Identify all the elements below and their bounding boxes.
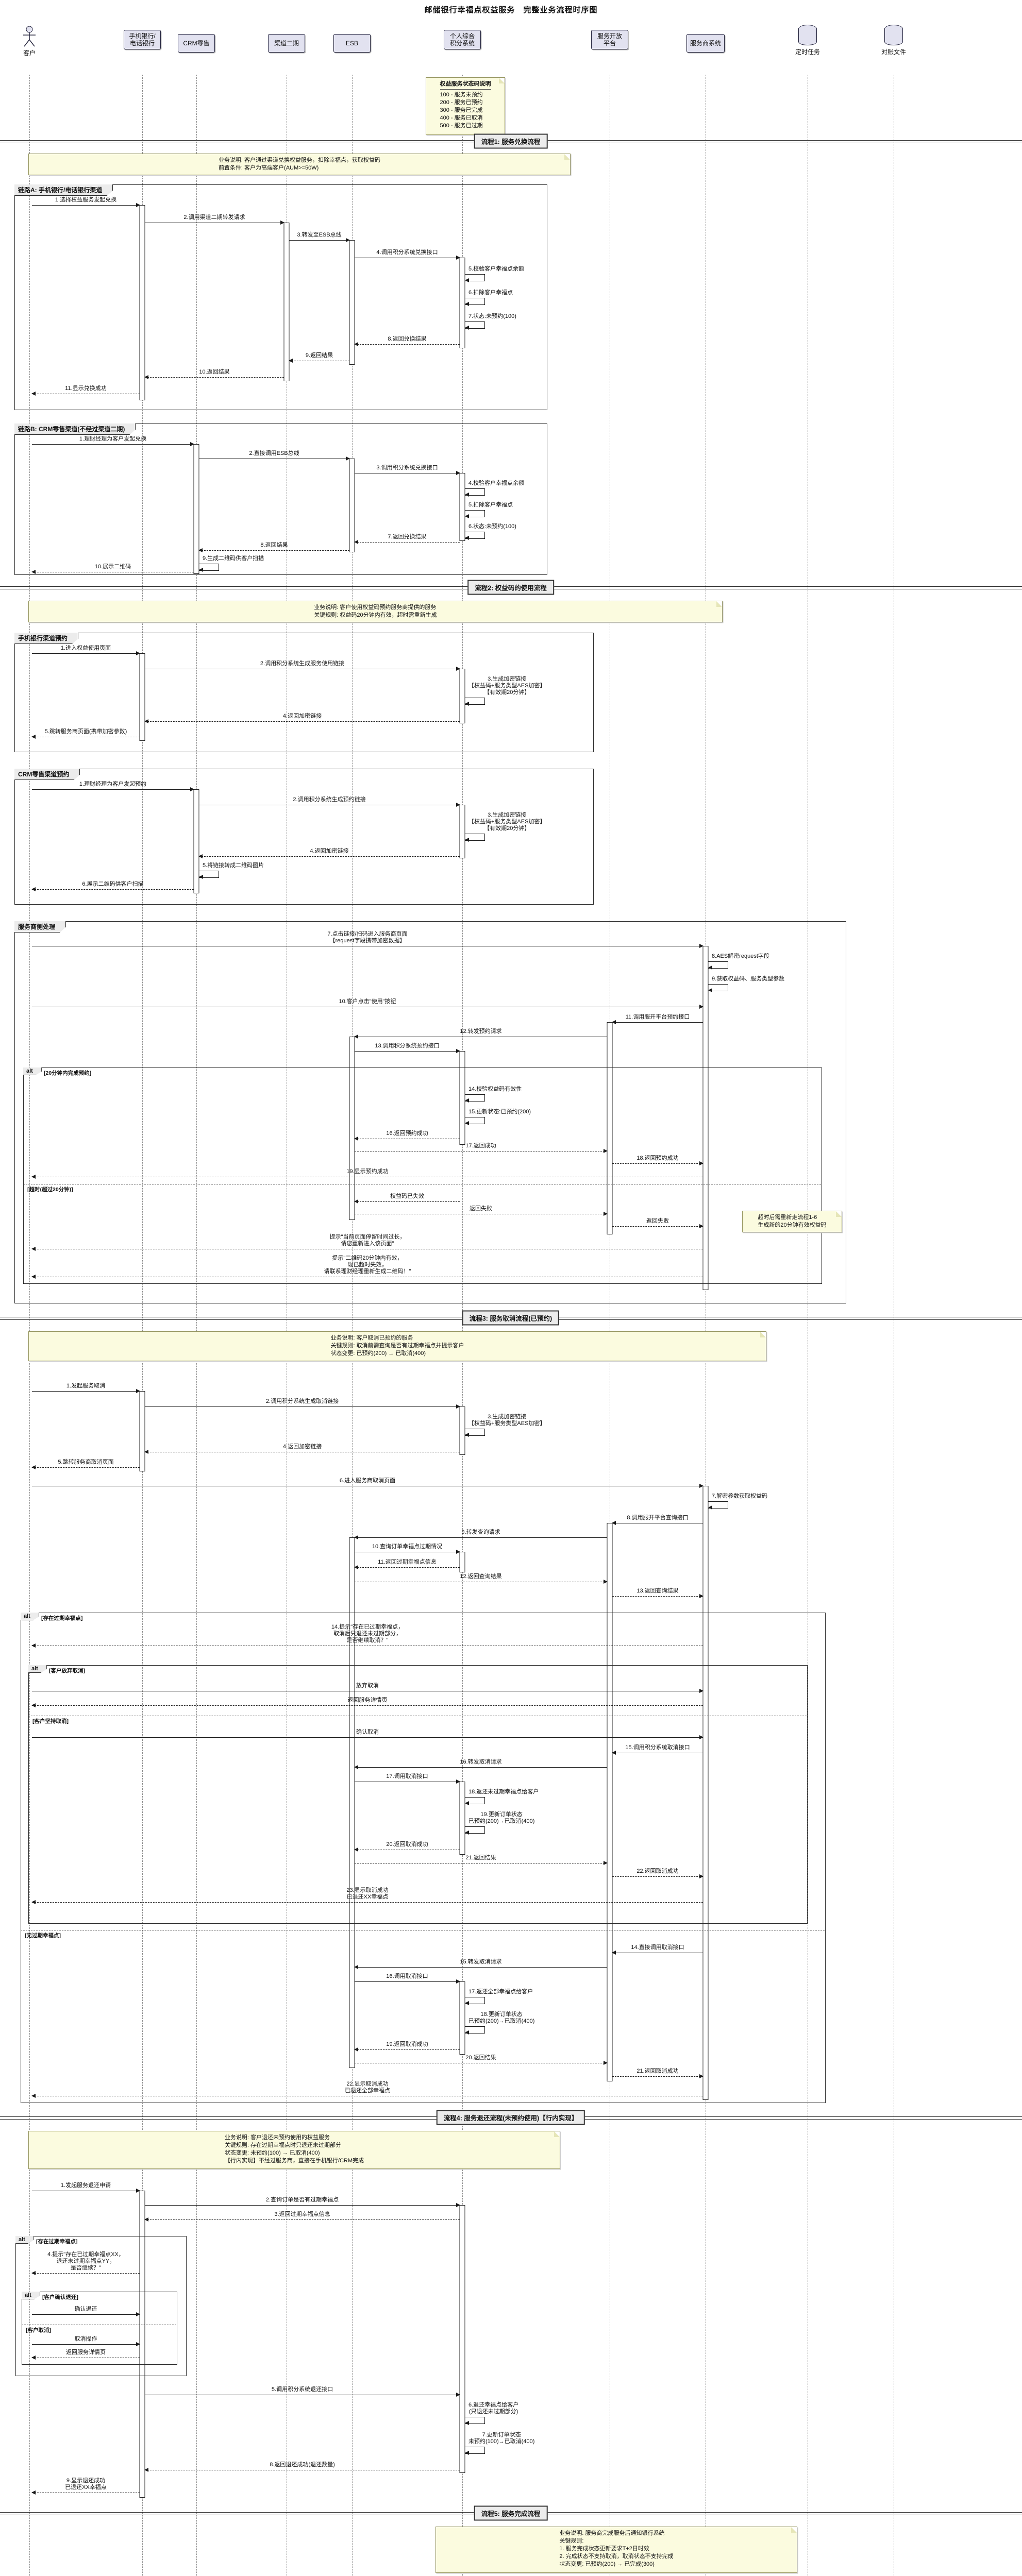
self-message-label: 3.生成加密链接 【权益码+服务类型AES加密】 【有效期20分钟】 [468,812,545,832]
message-label: 3.转发至ESB总线 [297,232,341,239]
message-arrowhead [456,256,460,260]
message-arrowhead [699,1594,703,1598]
message-arrow [32,789,194,790]
message-arrow [355,1051,460,1052]
message-label: 取消操作 [75,2336,97,2343]
self-message-arrowhead [199,568,203,572]
return-message-arrow [199,856,460,857]
message-arrow [145,223,284,223]
participant-box-points: 个人综合 积分系统 [444,30,481,49]
message-arrow [32,444,194,445]
message-label: 20.返回取消成功 [386,1841,428,1848]
message-arrowhead [354,342,358,346]
message-label: 7.点击链接/扫码进入服务商页面 【request字段携带加密数据】 [327,931,407,944]
message-label: 22.返回取消成功 [636,1868,678,1875]
message-arrowhead [612,1951,616,1955]
frame-label: 链路B: CRM零售渠道(不经过渠道二期) [14,423,136,435]
message-label: 16.转发取消请求 [460,1759,501,1766]
message-arrowhead [190,787,194,791]
lifeline-vendor [706,75,706,2576]
self-message-arrowhead [465,2001,469,2005]
message-arrowhead [699,1224,703,1228]
message-arrowhead [144,719,148,723]
message-arrowhead [31,2094,36,2098]
return-message-arrow [32,1705,703,1706]
message-label: 7.返回兑换结果 [388,534,426,540]
message-arrow [199,805,460,805]
message-label: 23.显示取消成功 已退还XX幸福点 [346,1887,388,1901]
return-message-arrow [32,1646,703,1646]
message-arrow [355,258,460,258]
diagram-title: 邮储银行幸福点权益服务 完整业务流程时序图 [0,4,1022,15]
note-fold [716,601,722,607]
return-message-arrow [289,361,349,361]
message-label: 8.返回退还成功(退还数量) [270,2462,335,2468]
message-label: 9.转发查询请求 [461,1529,500,1536]
participant-label: 客户 [23,48,36,57]
self-message-label: 7.状态:未预约(100) [468,313,516,320]
message-label: 8.返回结果 [260,542,288,549]
message-arrow [145,669,460,669]
message-arrowhead [354,540,358,544]
database-icon [884,28,903,45]
frame [14,423,547,575]
actor-icon [22,26,37,47]
message-arrowhead [144,1450,148,1454]
message-arrowhead [31,1247,36,1251]
self-message-arrowhead [708,1505,712,1510]
message-label: 4.返回加密链接 [310,848,348,855]
guard-label: [存在过期幸福点] [36,2238,78,2245]
message-arrowhead [354,1565,358,1569]
return-message-arrow [32,1467,140,1468]
return-message-arrow [355,1567,460,1568]
return-message-arrow [32,2096,703,2096]
message-label: 4.返回加密链接 [283,1444,322,1450]
message-label: 15.调用积分系统取消接口 [625,1744,690,1751]
message-arrowhead [289,359,293,363]
message-arrowhead [456,1049,460,1053]
alt-branch-divider [28,1716,807,1716]
message-label: 2.调用积分系统生成预约链接 [293,796,365,803]
alt-block [28,1665,808,1924]
message-arrowhead [136,1389,140,1393]
message-arrowhead [699,944,703,948]
note: 业务说明: 服务商完成服务后通知银行系统 关键规则: 1. 服务完成状态更新要求… [435,2527,797,2573]
message-label: 提示"当前页面停留时间过长， 请您重新进入该页面" [330,1234,406,1247]
message-arrowhead [354,1965,358,1969]
frame-label: CRM零售渠道预约 [14,769,80,780]
message-arrow [199,459,349,459]
message-arrowhead [456,471,460,475]
note: 业务说明: 客户使用权益码预约服务商提供的服务 关键规则: 权益码20分钟内有效… [28,601,723,622]
message-arrow [32,205,140,206]
self-message-label: 5.校验客户幸福点余额 [468,266,524,273]
message-arrowhead [136,203,140,207]
message-arrowhead [456,1550,460,1554]
message-label: 3.调用积分系统兑换接口 [376,465,438,471]
message-label: 3.返回过期幸福点信息 [274,2211,330,2218]
self-message-label: 18.更新订单状态 已预约(200)→已取消(400) [468,2011,534,2025]
message-arrowhead [31,2271,36,2275]
note-fold [791,2527,797,2533]
self-message-label: 9.生成二维码供客户扫描 [203,555,264,562]
self-message-label: 6.状态:未预约(100) [468,523,516,530]
message-label: 1.发起服务取消 [66,1383,105,1389]
message-label: 4.提示"存在已过期幸福点XX， 退还未过期幸福点YY， 是否继续？" [47,2251,124,2272]
return-message-arrow [145,377,284,378]
return-message-arrow [32,394,140,394]
message-label: 18.返回预约成功 [636,1155,678,1162]
message-label: 放弃取消 [356,1683,379,1689]
participant-box-vendor: 服务商系统 [686,34,725,53]
note-fold [499,78,505,83]
message-arrow [145,2395,460,2395]
message-arrowhead [604,1580,608,1584]
message-label: 1.理财经理为客户发起兑换 [79,436,146,443]
message-arrowhead [354,2047,358,2052]
return-message-arrow [612,1876,703,1877]
message-arrowhead [31,1465,36,1469]
note-text: 业务说明: 客户通过渠道兑换权益服务，扣除幸福点，获取权益码 前置条件: 客户为… [219,157,380,172]
message-arrowhead [31,735,36,739]
message-arrow [32,1691,703,1691]
return-message-arrow [145,721,460,722]
self-message-arrowhead [465,302,469,306]
message-label: 1.进入权益使用页面 [61,645,111,652]
message-label: 19.显示预约成功 [346,1168,388,1175]
message-arrowhead [136,651,140,655]
self-message-arrowhead [465,702,469,706]
return-message-arrow [145,2470,460,2470]
self-message-label: 7.更新订单状态 未预约(100)→已取消(400) [468,2432,534,2445]
message-arrowhead [144,375,148,379]
message-arrowhead [699,2074,703,2078]
message-arrow [32,946,703,946]
return-message-arrow [355,1201,460,1202]
participant-box-crm: CRM零售 [178,34,215,53]
message-arrowhead [136,2342,140,2346]
message-arrowhead [456,1780,460,1784]
guard-label: [超时(超过20分钟)] [27,1185,73,1193]
lifeline-recon-file [894,75,894,2576]
message-label: 5.跳转服务商页面(携带加密参数) [45,728,127,735]
note-fold [760,1332,766,1337]
message-arrowhead [699,1874,703,1878]
message-arrowhead [604,1861,608,1865]
note-fold [554,2131,560,2137]
message-label: 13.调用积分系统预约接口 [375,1043,439,1049]
message-label: 15.转发取消请求 [460,1959,501,1965]
message-label: 17.调用取消接口 [386,1773,428,1780]
self-message-arrowhead [465,1121,469,1125]
alt-branch-divider [21,1930,825,1930]
message-label: 2.调用积分系统生成服务使用链接 [260,660,344,667]
guard-label: [无过期幸福点] [25,1931,61,1939]
message-label: 确认取消 [356,1729,379,1736]
self-message-label: 7.解密参数获取权益码 [712,1493,767,1500]
message-arrowhead [136,2189,140,2193]
message-arrowhead [456,2203,460,2207]
activation-bar [140,1391,145,1471]
message-arrowhead [136,2312,140,2316]
self-message-arrowhead [465,326,469,330]
message-label: 返回失败 [646,1218,669,1225]
return-message-arrow [32,2493,140,2493]
message-label: 20.返回结果 [465,2055,496,2061]
return-message-arrow [355,1214,607,1214]
note-text: 业务说明: 客户退还未预约使用的权益服务 关键规则: 存在过期幸福点时只退还未过… [225,2134,364,2165]
return-message-arrow [32,1277,703,1277]
message-arrowhead [699,1735,703,1739]
message-label: 9.显示退还成功 已退还XX幸福点 [65,2478,107,2491]
return-message-arrow [32,572,194,572]
self-message-arrowhead [465,2030,469,2035]
note-text: 权益服务状态码说明100 - 服务未预约 200 - 服务已预约 300 - 服… [440,80,491,130]
message-arrowhead [198,548,203,552]
message-arrowhead [31,1175,36,1179]
self-message-arrowhead [465,514,469,518]
participant-box-mobile-bank: 手机银行/ 电话银行 [124,30,161,49]
message-arrowhead [604,1149,608,1153]
guard-label: [客户确认退还] [42,2293,78,2301]
return-message-arrow [355,344,460,345]
message-arrowhead [31,887,36,891]
message-arrow [32,653,140,654]
return-message-arrow [145,2219,460,2220]
guard-label: [客户坚持取消] [32,1717,69,1725]
activation-bar [460,1406,465,1455]
activation-bar [460,1552,465,1572]
message-arrow [355,1037,607,1037]
message-label: 11.显示兑换成功 [65,385,106,392]
note: 业务说明: 客户退还未预约使用的权益服务 关键规则: 存在过期幸福点时只退还未过… [28,2131,560,2169]
section-divider-label: 流程5: 服务完成流程 [474,2506,548,2521]
participant-label: 对账文件 [881,47,906,56]
self-message-arrowhead [465,1098,469,1103]
guard-label: [客户取消] [26,2326,51,2334]
return-message-arrow [355,542,460,543]
note: 业务说明: 客户取消已预约的服务 关键规则: 取消前需查询是否有过期幸福点并提示… [28,1331,766,1361]
message-arrowhead [346,456,350,461]
return-message-arrow [32,889,194,890]
return-message-arrow [355,1139,460,1139]
lifeline-open-platform [610,75,610,2576]
return-message-arrow [199,550,349,551]
self-message-label: 3.生成加密链接 【权益码+服务类型AES加密】 【有效期20分钟】 [468,676,545,696]
return-message-arrow [32,2358,140,2358]
message-label: 10.返回结果 [199,369,229,376]
message-arrowhead [699,1689,703,1693]
message-arrowhead [456,1979,460,1984]
message-arrowhead [144,2468,148,2472]
message-label: 1.发起服务退还申请 [61,2182,111,2189]
message-arrowhead [198,854,203,858]
self-message-label: 17.返还全部幸福点给客户 [468,1989,533,1995]
message-arrow [355,1537,607,1538]
message-arrow [355,1552,460,1552]
note-text: 业务说明: 客户使用权益码预约服务商提供的服务 关键规则: 权益码20分钟内有效… [314,604,437,619]
message-arrowhead [31,1703,36,1707]
message-arrowhead [280,221,284,225]
self-message-arrowhead [465,493,469,497]
message-label: 22.显示取消成功 已退还全部幸福点 [345,2081,390,2094]
return-message-arrow [355,1582,607,1582]
message-arrowhead [354,1848,358,1852]
return-message-arrow [355,2063,607,2063]
message-arrow [612,1523,703,1523]
message-label: 21.返回取消成功 [636,2068,678,2075]
section-divider-label: 流程1: 服务兑换流程 [474,134,548,149]
guard-label: [客户放弃取消] [49,1667,85,1674]
note-text: 业务说明: 客户取消已预约的服务 关键规则: 取消前需查询是否有过期幸福点并提示… [330,1334,464,1358]
message-arrowhead [604,1212,608,1216]
self-message-label: 19.更新订单状态 已预约(200)→已取消(400) [468,1811,534,1825]
message-label: 12.返回查询结果 [460,1573,501,1580]
message-arrow [355,1981,460,1982]
note: 权益服务状态码说明100 - 服务未预约 200 - 服务已预约 300 - 服… [426,77,505,135]
self-message-arrowhead [708,988,712,992]
message-label: 5.跳转服务商取消页面 [58,1459,113,1466]
self-message-label: 15.更新状态:已预约(200) [468,1109,531,1115]
message-arrow [612,1022,703,1023]
frame-label: 手机银行渠道预约 [14,633,78,644]
return-message-arrow [32,1249,703,1249]
message-label: 17.返回成功 [465,1143,496,1149]
note-text: 超时后需重新走流程1-6 生成新的20分钟有效权益码 [758,1214,826,1229]
message-label: 确认退还 [75,2306,97,2313]
message-label: 14.提示"存在已过期幸福点， 取消后只退还未过期部分， 是否继续取消？" [331,1624,404,1644]
guard-label: [存在过期幸福点] [41,1614,83,1622]
self-message-label: 5.扣除客户幸福点 [468,502,513,509]
message-arrow [355,473,460,473]
message-arrow [612,1753,703,1753]
message-arrow [145,1406,460,1407]
participant-label: 定时任务 [795,47,820,56]
message-label: 返回失败 [470,1206,492,1212]
self-message-label: 3.生成加密链接 【权益码+服务类型AES加密】 [468,1414,545,1427]
message-arrowhead [456,2393,460,2397]
section-divider-label: 流程2: 权益码的使用流程 [467,580,554,595]
message-label: 2.调用积分系统生成取消链接 [266,1398,339,1405]
return-message-arrow [355,1850,460,1850]
message-arrowhead [31,1900,36,1904]
message-label: 2.查询订单是否有过期幸福点 [266,2197,339,2204]
alt-block [23,1067,822,1284]
return-message-arrow [612,1163,703,1164]
note: 业务说明: 客户通过渠道兑换权益服务，扣除幸福点，获取权益码 前置条件: 客户为… [28,154,571,175]
note: 超时后需重新走流程1-6 生成新的20分钟有效权益码 [742,1211,842,1232]
note-fold [836,1211,842,1217]
message-label: 21.返回结果 [465,1855,496,1861]
frame-label: 链路A: 手机银行/电话银行渠道 [14,184,113,196]
message-label: 14.直接调用取消接口 [631,1944,684,1951]
message-label: 2.调用渠道二期转发请求 [183,214,245,221]
message-label: 8.调用服开平台查询接口 [627,1515,688,1521]
return-message-arrow [612,1226,703,1227]
message-arrow [32,2344,140,2345]
message-label: 2.直接调用ESB总线 [249,450,299,457]
message-arrow [32,1737,703,1738]
self-message-label: 18.返还未过期幸福点给客户 [468,1789,539,1795]
message-arrowhead [456,667,460,671]
message-arrowhead [31,570,36,574]
guard-label: [20分钟内完成预约] [44,1069,91,1077]
return-message-arrow [32,2273,140,2274]
message-arrow [355,1782,460,1782]
message-label: 19.返回取消成功 [386,2041,428,2048]
self-message-arrowhead [465,2421,469,2425]
self-message-label: 14.校验权益码有效性 [468,1086,522,1093]
message-arrowhead [612,1020,616,1024]
self-message-label: 6.退还幸福点给客户 (只退还未过期部分) [468,2402,518,2415]
message-label: 11.调用服开平台预约接口 [626,1014,690,1021]
message-label: 12.转发预约请求 [460,1028,501,1035]
note-text: 业务说明: 服务商完成服务后通知银行系统 关键规则: 1. 服务完成状态更新要求… [559,2530,673,2568]
message-arrow [145,2205,460,2206]
message-arrowhead [354,1199,358,1204]
return-message-arrow [612,1596,703,1597]
self-message-arrowhead [465,278,469,282]
message-label: 9.返回结果 [306,352,333,359]
alt-branch-divider [23,1184,821,1184]
section-divider-label: 流程4: 服务退还流程(未预约使用)【行内实现】 [437,2110,585,2125]
message-arrowhead [699,1005,703,1009]
message-arrowhead [604,2061,608,2065]
message-arrow [32,1486,703,1486]
message-label: 返回服务详情页 [66,2349,106,2356]
message-arrowhead [31,1275,36,1279]
self-message-label: 4.校验客户幸福点余额 [468,480,524,487]
self-message-arrowhead [465,1801,469,1805]
message-arrow [32,1007,703,1007]
return-message-arrow [32,737,140,737]
message-arrow [355,1767,607,1768]
alt-branch-divider [22,2325,176,2325]
message-arrowhead [31,2355,36,2360]
message-arrowhead [354,1137,358,1141]
message-arrow [289,240,349,241]
message-label: 1.理财经理为客户发起预约 [79,781,146,788]
message-arrowhead [31,392,36,396]
message-label: 8.返回兑换结果 [388,336,426,343]
message-label: 10.客户点击"使用"按钮 [339,998,396,1005]
message-arrowhead [612,1521,616,1525]
message-arrowhead [144,2217,148,2222]
participant-box-channel2: 渠道二期 [268,34,305,53]
message-arrow [32,1391,140,1392]
message-label: 权益码已失效 [390,1193,424,1200]
message-arrowhead [699,1161,703,1165]
self-message-label: 9.获取权益码、服务类型参数 [712,976,784,982]
participant-box-open-platform: 服务开放 平台 [591,30,628,49]
sequence-diagram: 邮储银行幸福点权益服务 完整业务流程时序图 客户手机银行/ 电话银行CRM零售渠… [0,0,1022,2576]
message-arrow [32,2191,140,2191]
message-label: 4.调用积分系统兑换接口 [376,249,438,256]
activation-bar [460,2205,465,2473]
message-arrow [612,1953,703,1953]
return-message-arrow [612,2076,703,2077]
return-message-arrow [355,1863,607,1863]
message-arrowhead [354,1765,358,1769]
message-label: 10.展示二维码 [95,564,131,570]
message-arrow [32,2314,140,2315]
self-message-arrowhead [465,536,469,540]
message-label: 1.选择权益服务发起兑换 [55,197,116,204]
message-arrowhead [456,803,460,807]
self-message-arrowhead [465,838,469,842]
message-label: 16.返回预约成功 [386,1130,428,1137]
